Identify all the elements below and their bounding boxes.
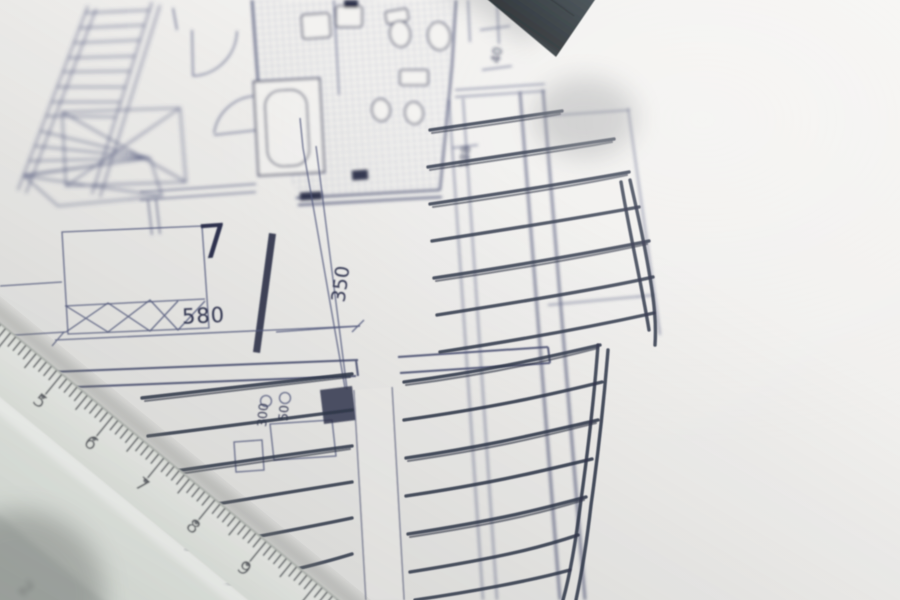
corner-vignette — [0, 0, 900, 600]
floor-plan-photo: 580 7 350 300 50 — [0, 0, 900, 600]
photo-scene: 580 7 350 300 50 — [0, 0, 900, 600]
